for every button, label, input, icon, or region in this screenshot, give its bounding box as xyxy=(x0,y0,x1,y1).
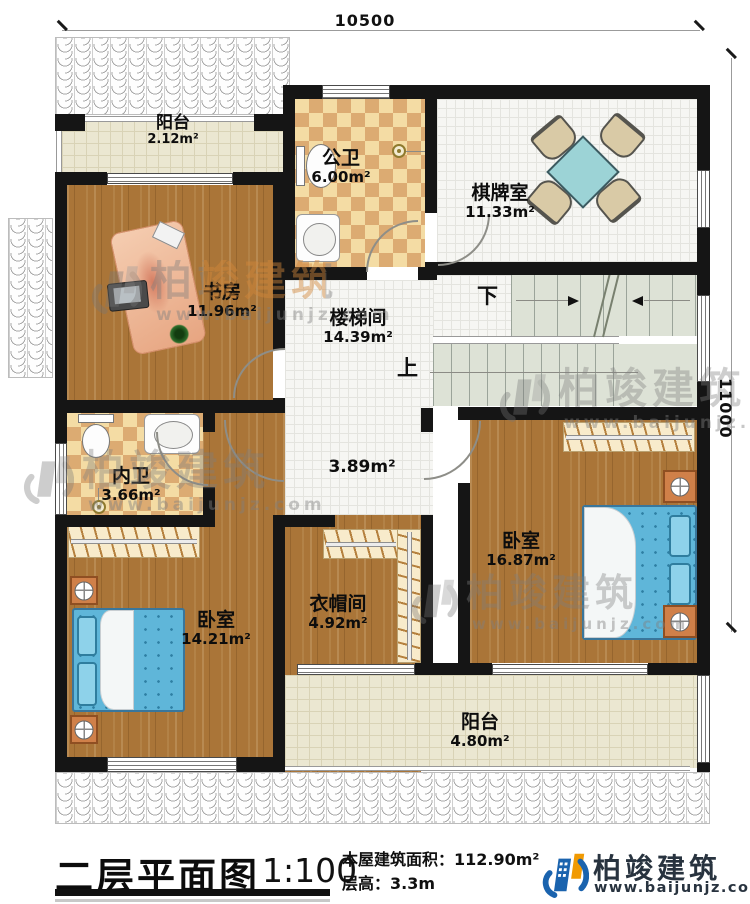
wall-segment xyxy=(55,400,285,413)
roof-tiles-top xyxy=(55,37,290,115)
room-name: 衣帽间 xyxy=(308,594,367,615)
room-name: 楼梯间 xyxy=(323,308,393,329)
shower-head-icon xyxy=(392,144,406,158)
stair-direction-line xyxy=(516,300,568,301)
stair-arrow-icon xyxy=(632,296,643,306)
stairs-down-label: 下 xyxy=(477,280,498,310)
wall-segment xyxy=(697,763,710,772)
wall-segment xyxy=(55,515,215,527)
room-area: 4.80m² xyxy=(450,733,509,750)
stair-flight-lower xyxy=(433,344,617,406)
dimension-height-label: 11000 xyxy=(716,378,735,439)
wardrobe-rack xyxy=(68,524,200,558)
room-name: 书房 xyxy=(187,282,257,303)
bed-sheet xyxy=(584,507,636,638)
wall-segment xyxy=(425,99,437,213)
wardrobe-rack xyxy=(397,529,421,663)
nightstand xyxy=(663,605,697,638)
sliding-door xyxy=(492,664,648,675)
window xyxy=(322,85,390,99)
room-label-balcony-bottom: 阳台 4.80m² xyxy=(450,712,509,749)
rack-rail xyxy=(326,542,396,547)
wall-segment xyxy=(237,757,285,772)
wall-segment xyxy=(697,85,710,170)
window xyxy=(697,295,710,382)
rack-rail xyxy=(566,435,692,440)
room-label-balcony-top: 阳台 2.12m² xyxy=(147,114,198,147)
stair-arrow-icon xyxy=(568,296,579,306)
floor-plan-page: 阳台 2.12m² 公卫 6.00m² 棋牌室 11.33m² 书房 11.96… xyxy=(0,0,750,904)
toilet-tank-icon xyxy=(78,414,114,423)
toilet-bowl-icon xyxy=(82,424,110,458)
title-underline xyxy=(55,889,330,896)
dimension-line-right xyxy=(731,58,732,632)
room-area: 11.33m² xyxy=(465,204,535,221)
dimension-width-label: 10500 xyxy=(300,11,430,30)
company-url: www.baijunjz.com xyxy=(594,880,750,896)
room-area: 14.39m² xyxy=(323,329,393,346)
nightstand xyxy=(70,576,98,605)
room-area: 14.21m² xyxy=(181,631,251,648)
hallway-area-label: 3.89m² xyxy=(328,458,395,477)
wall-segment xyxy=(697,382,710,663)
room-name: 卧室 xyxy=(486,531,556,552)
room-label-stairwell: 楼梯间 14.39m² xyxy=(323,308,393,345)
room-label-public-bath: 公卫 6.00m² xyxy=(311,148,370,185)
stair-landing xyxy=(617,344,697,406)
wardrobe-rack xyxy=(323,529,399,559)
wall-segment xyxy=(55,114,85,131)
room-label-inner-bath: 内卫 3.66m² xyxy=(101,466,160,503)
company-logo-icon xyxy=(541,846,589,900)
pillow xyxy=(77,662,97,706)
wall-segment xyxy=(425,262,710,275)
wall-segment xyxy=(283,85,322,99)
wall-segment xyxy=(283,267,367,280)
lamp-icon xyxy=(75,720,94,739)
room-name: 阳台 xyxy=(147,114,198,133)
stair-handrail xyxy=(433,336,619,344)
room-name: 公卫 xyxy=(311,148,370,169)
room-label-cloakroom: 衣帽间 4.92m² xyxy=(308,594,367,631)
floor-stair-landing-top xyxy=(433,275,511,336)
nightstand xyxy=(70,715,98,744)
wall-segment xyxy=(415,663,492,675)
wardrobe-rack xyxy=(563,422,695,452)
plant-icon xyxy=(167,322,191,346)
room-area: 3.66m² xyxy=(101,487,160,504)
floor-height-line: 层高：3.3m xyxy=(342,872,539,896)
title-underline-shadow xyxy=(55,899,330,902)
lamp-icon xyxy=(75,581,94,600)
room-label-game-room: 棋牌室 11.33m² xyxy=(465,183,535,220)
balcony-railing xyxy=(56,131,62,172)
room-label-bedroom-left: 卧室 14.21m² xyxy=(181,610,251,647)
lamp-icon xyxy=(671,477,690,496)
wall-segment xyxy=(203,413,215,432)
sink xyxy=(296,214,340,262)
game-table-group xyxy=(527,120,643,224)
rack-rail xyxy=(71,539,197,544)
balcony-railing xyxy=(285,766,690,771)
room-name: 卧室 xyxy=(181,610,251,631)
window xyxy=(107,757,237,772)
wall-segment xyxy=(55,515,67,772)
roof-tiles-left xyxy=(8,218,53,378)
sliding-door xyxy=(297,664,415,675)
room-area: 2.12m² xyxy=(147,133,198,147)
monitor-icon xyxy=(107,280,150,312)
shower-arm xyxy=(404,151,425,152)
room-label-bedroom-right: 卧室 16.87m² xyxy=(486,531,556,568)
bed xyxy=(72,608,185,712)
pillow xyxy=(669,563,691,605)
wall-segment xyxy=(55,172,107,185)
stairs-up-label: 上 xyxy=(397,352,418,382)
wall-segment xyxy=(390,85,710,99)
dimension-line-top xyxy=(62,30,700,31)
nightstand xyxy=(663,470,697,503)
wall-segment xyxy=(273,172,285,350)
lamp-icon xyxy=(671,612,690,631)
window xyxy=(55,443,67,515)
window xyxy=(697,675,710,763)
pillow xyxy=(669,515,691,557)
stair-direction-line xyxy=(644,300,690,301)
room-name: 阳台 xyxy=(450,712,509,733)
wall-segment xyxy=(273,515,285,772)
wall-segment xyxy=(458,407,710,420)
roof-tiles-bottom xyxy=(55,772,710,824)
room-name: 棋牌室 xyxy=(465,183,535,204)
toilet-tank-icon xyxy=(296,146,305,186)
room-area: 6.00m² xyxy=(311,169,370,186)
bed-sheet xyxy=(100,610,134,710)
monitor-screen xyxy=(113,286,141,305)
window xyxy=(697,170,710,228)
plan-info: 本屋建筑面积：112.90m² 层高：3.3m xyxy=(342,848,539,896)
room-area: 16.87m² xyxy=(486,552,556,569)
wall-segment xyxy=(458,407,470,420)
sliding-door xyxy=(107,173,233,184)
room-label-study: 书房 11.96m² xyxy=(187,282,257,319)
shower-dot xyxy=(97,505,101,509)
wall-segment xyxy=(55,757,107,772)
sink-basin xyxy=(303,223,336,256)
rack-rail xyxy=(407,532,412,660)
room-area: 11.96m² xyxy=(187,303,257,320)
wall-segment xyxy=(458,483,470,675)
shower-dot xyxy=(397,149,401,153)
wall-segment xyxy=(648,663,710,675)
stair-direction-line xyxy=(430,372,638,373)
room-name: 内卫 xyxy=(101,466,160,487)
room-area: 4.92m² xyxy=(308,615,367,632)
pillow xyxy=(77,616,97,656)
room-area: 3.89m² xyxy=(328,458,395,477)
building-area-line: 本屋建筑面积：112.90m² xyxy=(342,848,539,872)
wall-segment xyxy=(421,515,433,675)
